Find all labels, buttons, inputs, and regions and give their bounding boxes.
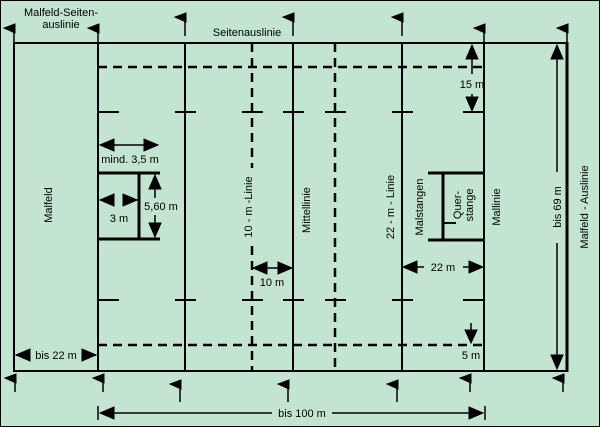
10m-linie-label: 10 - m -Linie [243, 176, 255, 237]
rugby-field-diagram: 15 m mind. 3,5 m 3 m 5,60 m 10 m 22 m [0, 0, 600, 427]
dimension-5-60m-label: 5,60 m [144, 201, 178, 213]
dimension-5m-label: 5 m [462, 350, 480, 362]
dimension-bis-22m: bis 22 m [16, 349, 96, 362]
malfeld-seitenauslinie-label-line2: auslinie [42, 19, 79, 31]
seitenauslinie-label: Seitenauslinie [213, 27, 282, 39]
querstange-label-line2: stange [464, 188, 476, 221]
dimension-bis-100m-label: bis 100 m [278, 408, 326, 420]
malfeld-auslinie-label: Malfeld - Auslinie [579, 165, 591, 248]
malstangen-label: Malstangen [414, 179, 426, 236]
diagram-background [1, 1, 600, 427]
dimension-3m-label: 3 m [110, 213, 128, 225]
dimension-mind-3-5m-label: mind. 3,5 m [101, 154, 158, 166]
querstange-label-line1: Quer- [452, 191, 464, 219]
malfeld-label: Malfeld [43, 187, 55, 222]
dimension-22m-label: 22 m [431, 262, 455, 274]
dimension-bis-69m-label: bis 69 m [552, 186, 564, 228]
dimension-15m-label: 15 m [460, 79, 484, 91]
malfeld-seitenauslinie-label-line1: Malfeld-Seiten- [24, 7, 98, 19]
dimension-22m: 22 m [403, 261, 483, 274]
dimension-10m-label: 10 m [260, 277, 284, 289]
22m-linie-label: 22 - m - Linie [385, 175, 397, 239]
mittellinie-label: Mittellinie [301, 187, 313, 233]
dimension-bis-22m-label: bis 22 m [35, 350, 77, 362]
mallinie-label: Mallinie [491, 188, 503, 225]
